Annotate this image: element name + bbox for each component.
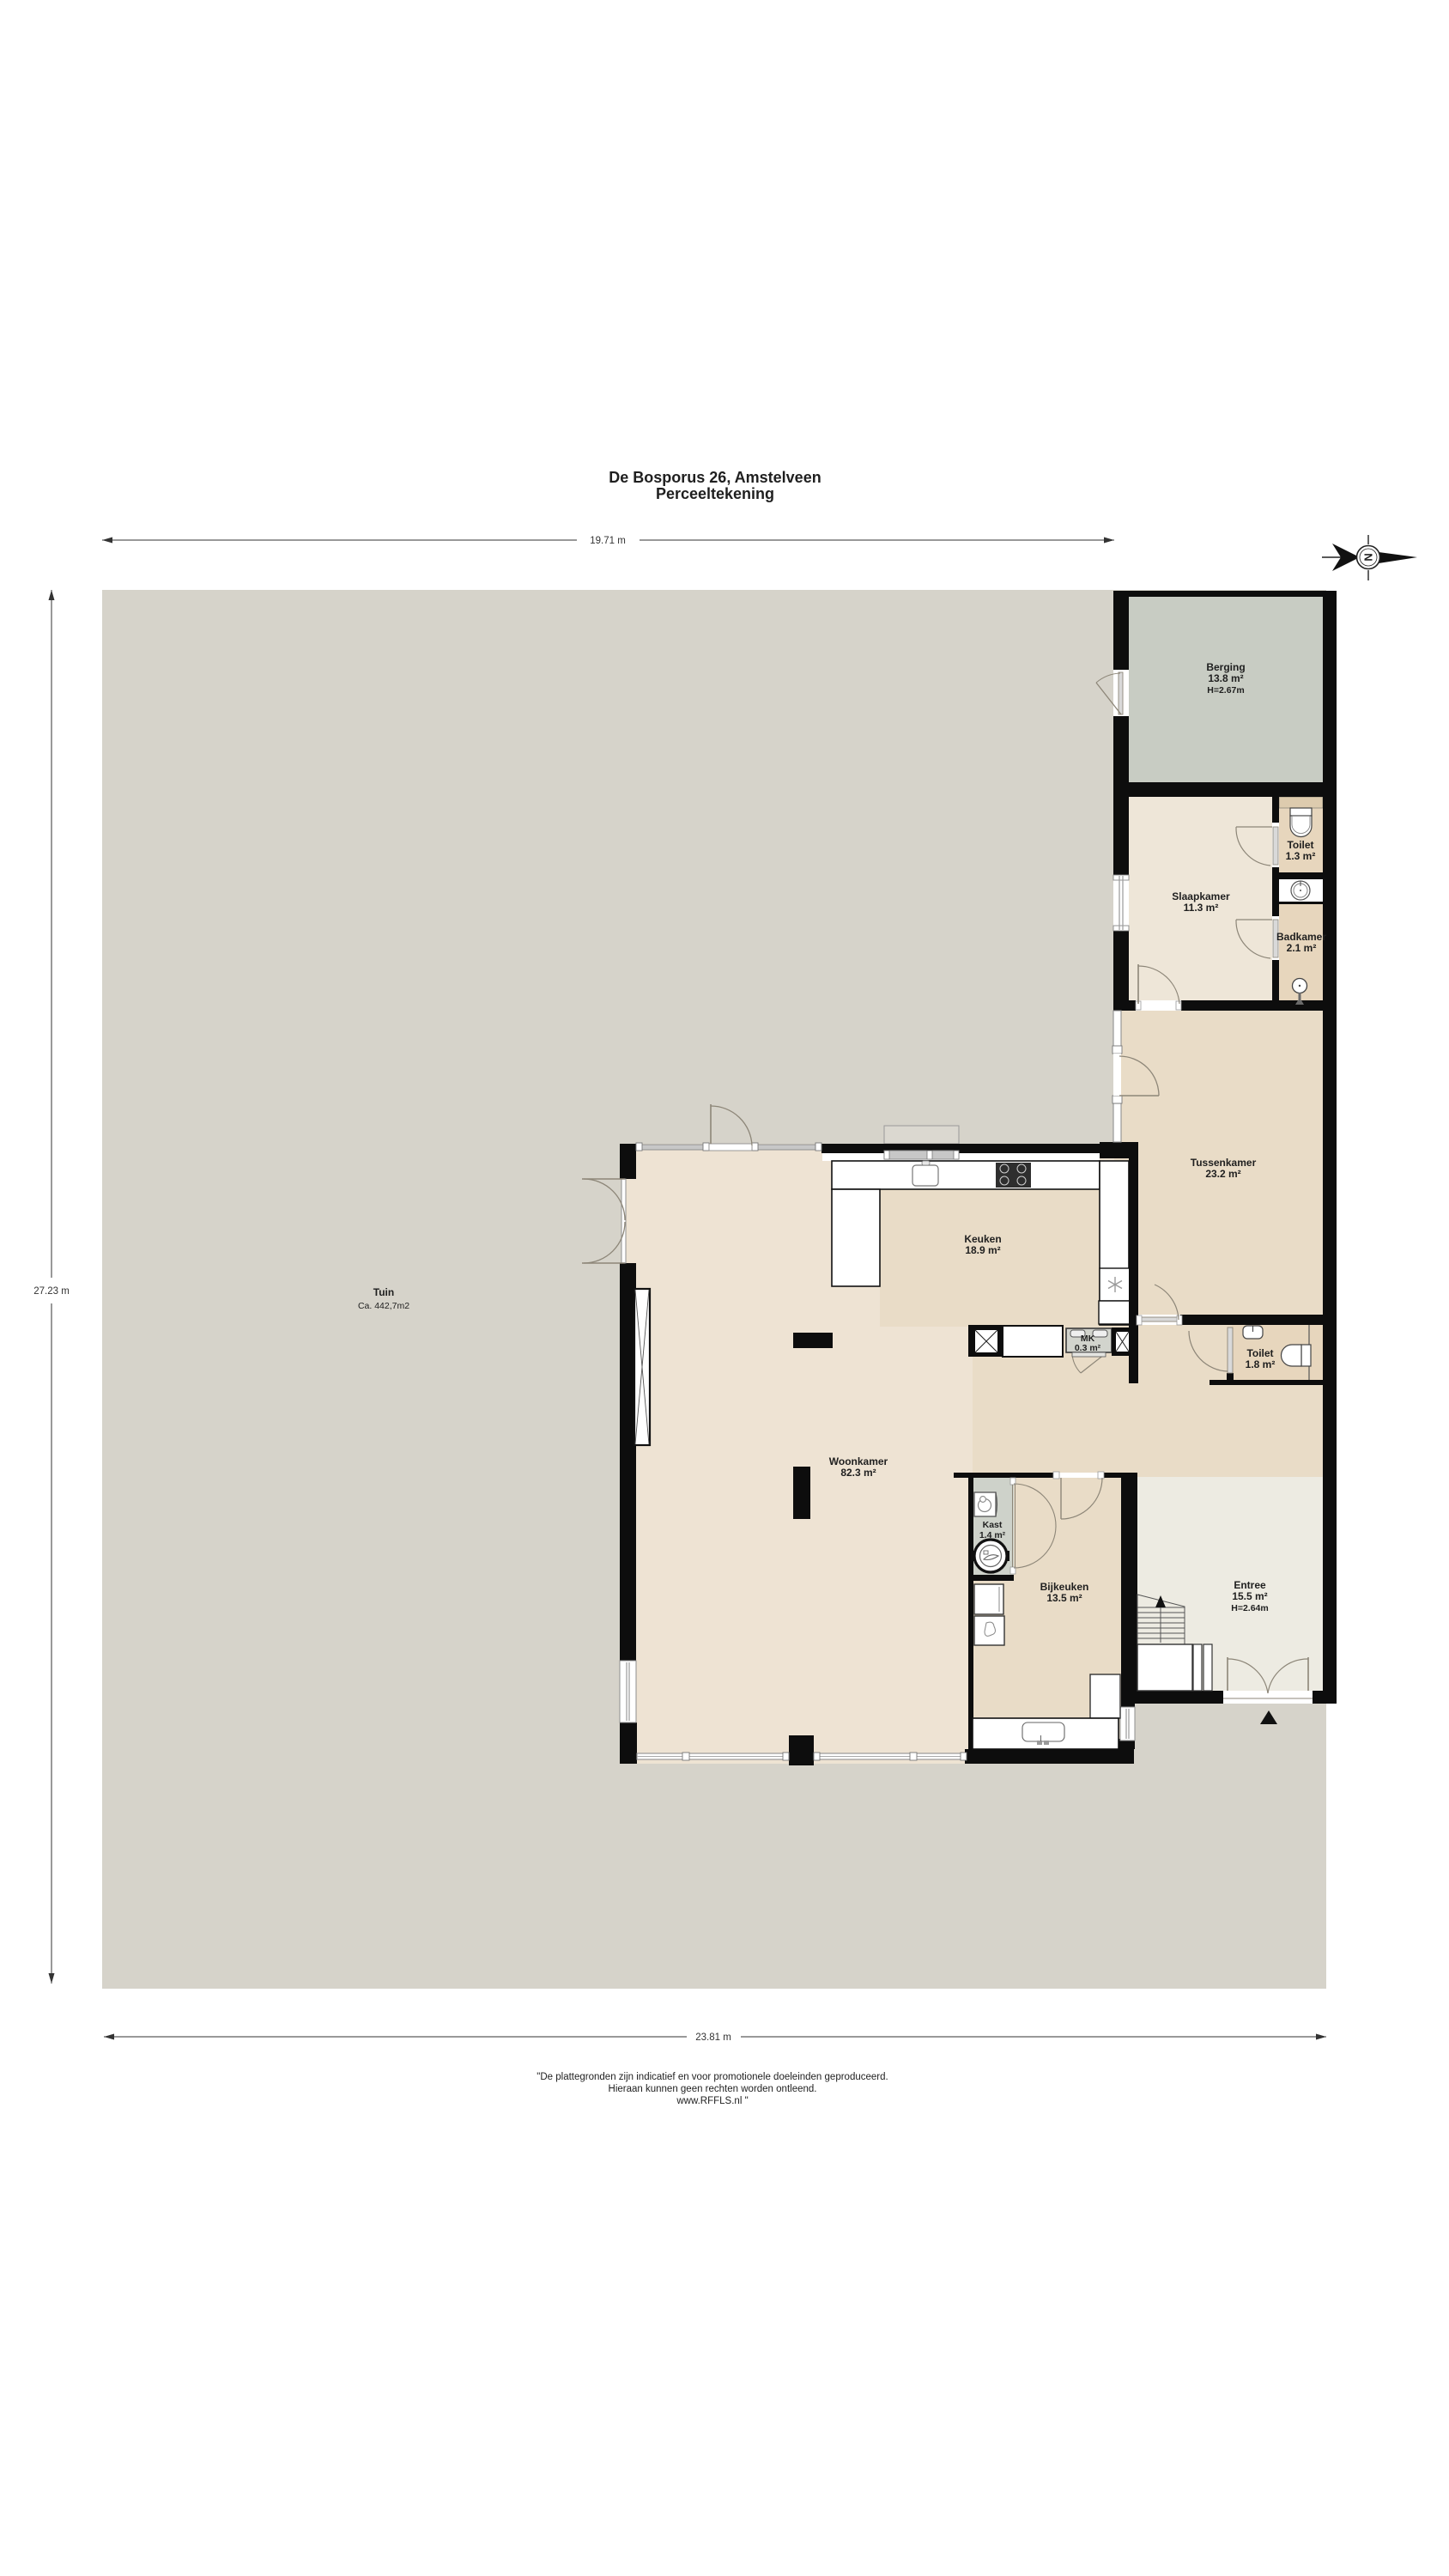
- svg-text:Tuin: Tuin: [373, 1286, 394, 1298]
- svg-text:Tussenkamer: Tussenkamer: [1191, 1157, 1257, 1169]
- svg-text:13.8 m²: 13.8 m²: [1208, 672, 1243, 684]
- svg-text:Badkamer: Badkamer: [1276, 931, 1326, 943]
- svg-text:15.5 m²: 15.5 m²: [1232, 1590, 1267, 1602]
- svg-text:13.5 m²: 13.5 m²: [1046, 1592, 1082, 1604]
- svg-text:Kast: Kast: [983, 1520, 1003, 1530]
- svg-text:Toilet: Toilet: [1287, 839, 1313, 851]
- svg-text:0.3 m²: 0.3 m²: [1075, 1343, 1101, 1353]
- svg-text:N: N: [1362, 553, 1375, 561]
- svg-text:23.81 m: 23.81 m: [695, 2032, 731, 2043]
- svg-text:www.RFFLS.nl ": www.RFFLS.nl ": [676, 2096, 748, 2106]
- svg-text:23.2 m²: 23.2 m²: [1205, 1168, 1240, 1180]
- svg-text:19.71 m: 19.71 m: [590, 536, 626, 546]
- svg-text:De Bosporus 26, Amstelveen: De Bosporus 26, Amstelveen: [609, 469, 821, 486]
- svg-text:"De plattegronden zijn indicat: "De plattegronden zijn indicatief en voo…: [537, 2072, 888, 2082]
- svg-text:1.8 m²: 1.8 m²: [1246, 1358, 1276, 1370]
- svg-text:Entree: Entree: [1234, 1579, 1266, 1591]
- svg-text:Woonkamer: Woonkamer: [829, 1455, 888, 1467]
- svg-text:1.3 m²: 1.3 m²: [1286, 850, 1316, 862]
- svg-text:Slaapkamer: Slaapkamer: [1172, 890, 1230, 902]
- svg-text:27.23 m: 27.23 m: [33, 1286, 70, 1297]
- svg-text:Hieraan kunnen geen rechten wo: Hieraan kunnen geen rechten worden ontle…: [609, 2084, 817, 2094]
- svg-text:Berging: Berging: [1206, 661, 1245, 673]
- svg-text:Keuken: Keuken: [964, 1233, 1001, 1245]
- svg-text:11.3 m²: 11.3 m²: [1184, 902, 1219, 914]
- svg-text:Perceeltekening: Perceeltekening: [656, 485, 774, 502]
- svg-text:1.4 m²: 1.4 m²: [979, 1530, 1006, 1540]
- svg-text:Ca. 442,7m2: Ca. 442,7m2: [358, 1301, 409, 1311]
- svg-text:2.1 m²: 2.1 m²: [1287, 942, 1317, 954]
- svg-text:82.3 m²: 82.3 m²: [840, 1467, 876, 1479]
- svg-text:H=2.64m: H=2.64m: [1231, 1603, 1269, 1613]
- svg-text:Toilet: Toilet: [1246, 1347, 1273, 1359]
- svg-text:18.9 m²: 18.9 m²: [965, 1244, 1000, 1256]
- svg-text:Bijkeuken: Bijkeuken: [1040, 1581, 1089, 1593]
- svg-text:H=2.67m: H=2.67m: [1207, 685, 1245, 696]
